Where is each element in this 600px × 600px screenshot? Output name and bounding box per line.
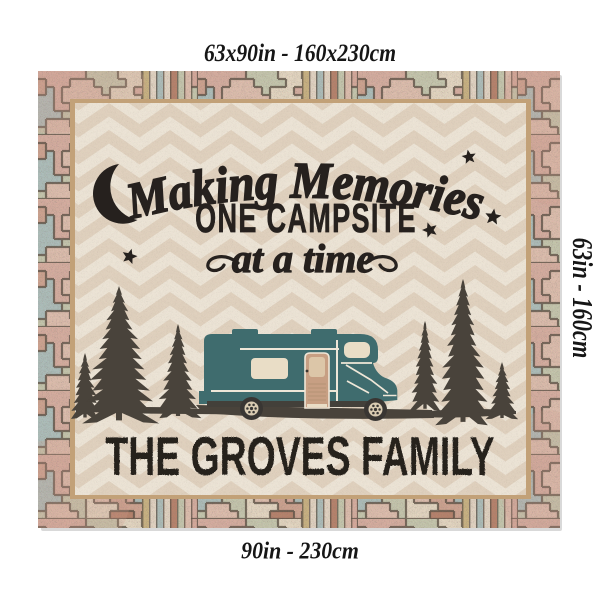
svg-text:63in - 160cm: 63in - 160cm (566, 238, 598, 358)
svg-text:90in - 230cm: 90in - 230cm (241, 538, 359, 564)
svg-text:ONE CAMPSITE: ONE CAMPSITE (195, 197, 417, 242)
svg-text:63x90in - 160x230cm: 63x90in - 160x230cm (204, 40, 396, 68)
svg-text:THE GROVES FAMILY: THE GROVES FAMILY (105, 425, 494, 487)
svg-text:at a time: at a time (232, 236, 374, 281)
